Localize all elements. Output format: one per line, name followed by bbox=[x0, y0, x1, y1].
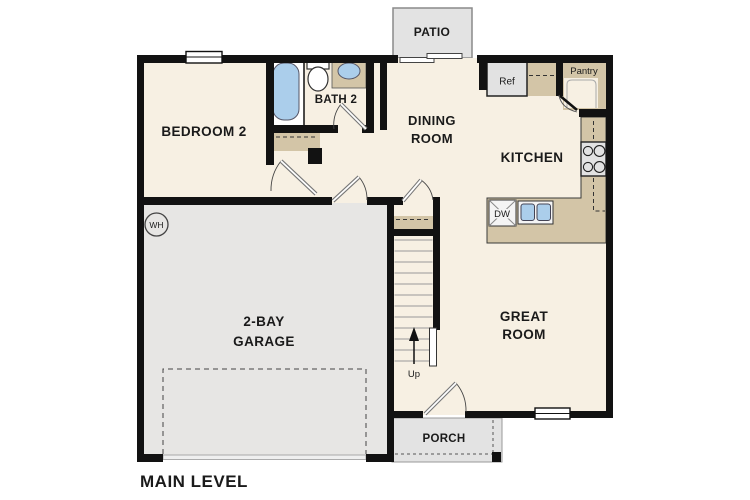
kitchen-label: KITCHEN bbox=[501, 150, 564, 165]
stair-closet-shelf bbox=[394, 216, 433, 230]
wall-segment bbox=[266, 55, 274, 133]
garage-area bbox=[144, 203, 388, 460]
stair-railing bbox=[430, 328, 437, 366]
bedroom2-label: BEDROOM 2 bbox=[161, 124, 246, 139]
pantry-label: Pantry bbox=[570, 66, 598, 77]
dining-room-label-line2: ROOM bbox=[411, 131, 453, 146]
bathtub bbox=[273, 63, 299, 120]
wall-segment bbox=[137, 55, 144, 462]
wall-segment bbox=[392, 411, 423, 418]
wall-segment bbox=[144, 197, 332, 205]
bath2-label: BATH 2 bbox=[315, 94, 357, 106]
garage-label-line2: GARAGE bbox=[233, 334, 295, 349]
patio-label: PATIO bbox=[414, 25, 450, 39]
bath-sink bbox=[338, 63, 360, 79]
wall-segment bbox=[394, 229, 433, 236]
wall-segment bbox=[556, 63, 563, 96]
refrigerator-label: Ref bbox=[499, 77, 515, 88]
wall-segment bbox=[367, 197, 403, 205]
dining-room-label-line1: DINING bbox=[408, 113, 456, 128]
kitchen-upper-cabinet bbox=[527, 63, 556, 96]
garage-door-panel bbox=[163, 455, 366, 460]
toilet-bowl bbox=[308, 67, 328, 91]
great-room-label-line1: GREAT bbox=[500, 309, 549, 324]
wall-segment bbox=[387, 197, 394, 462]
water-heater-label: WH bbox=[149, 220, 163, 230]
garage-floor bbox=[144, 203, 388, 456]
sink-basin-left bbox=[521, 204, 535, 221]
patio-slider-panel bbox=[427, 54, 462, 59]
dishwasher-label: DW bbox=[494, 209, 510, 220]
wall-segment bbox=[579, 109, 606, 117]
wall-segment bbox=[433, 197, 440, 330]
porch-label: PORCH bbox=[422, 433, 465, 445]
wall-segment bbox=[606, 55, 613, 418]
stairs-up-label: Up bbox=[408, 369, 420, 380]
floorplan-svg: PATIO Pantry Ref BATH 2 BEDROOM 2 DINING… bbox=[0, 0, 750, 500]
level-title: MAIN LEVEL bbox=[140, 472, 248, 491]
wall-segment bbox=[477, 55, 613, 63]
porch-column bbox=[492, 452, 501, 462]
sink-basin-right bbox=[537, 204, 551, 221]
wall-segment bbox=[137, 454, 163, 462]
wall-segment bbox=[380, 55, 387, 130]
wall-segment bbox=[308, 148, 322, 164]
floorplan-canvas: PATIO Pantry Ref BATH 2 BEDROOM 2 DINING… bbox=[0, 0, 750, 500]
great-room-label-line2: ROOM bbox=[502, 327, 546, 342]
wall-segment bbox=[479, 63, 487, 90]
wall-segment bbox=[266, 133, 274, 165]
garage-label-line1: 2-BAY bbox=[243, 314, 284, 329]
wall-segment bbox=[266, 125, 338, 133]
wall-segment bbox=[366, 55, 374, 133]
